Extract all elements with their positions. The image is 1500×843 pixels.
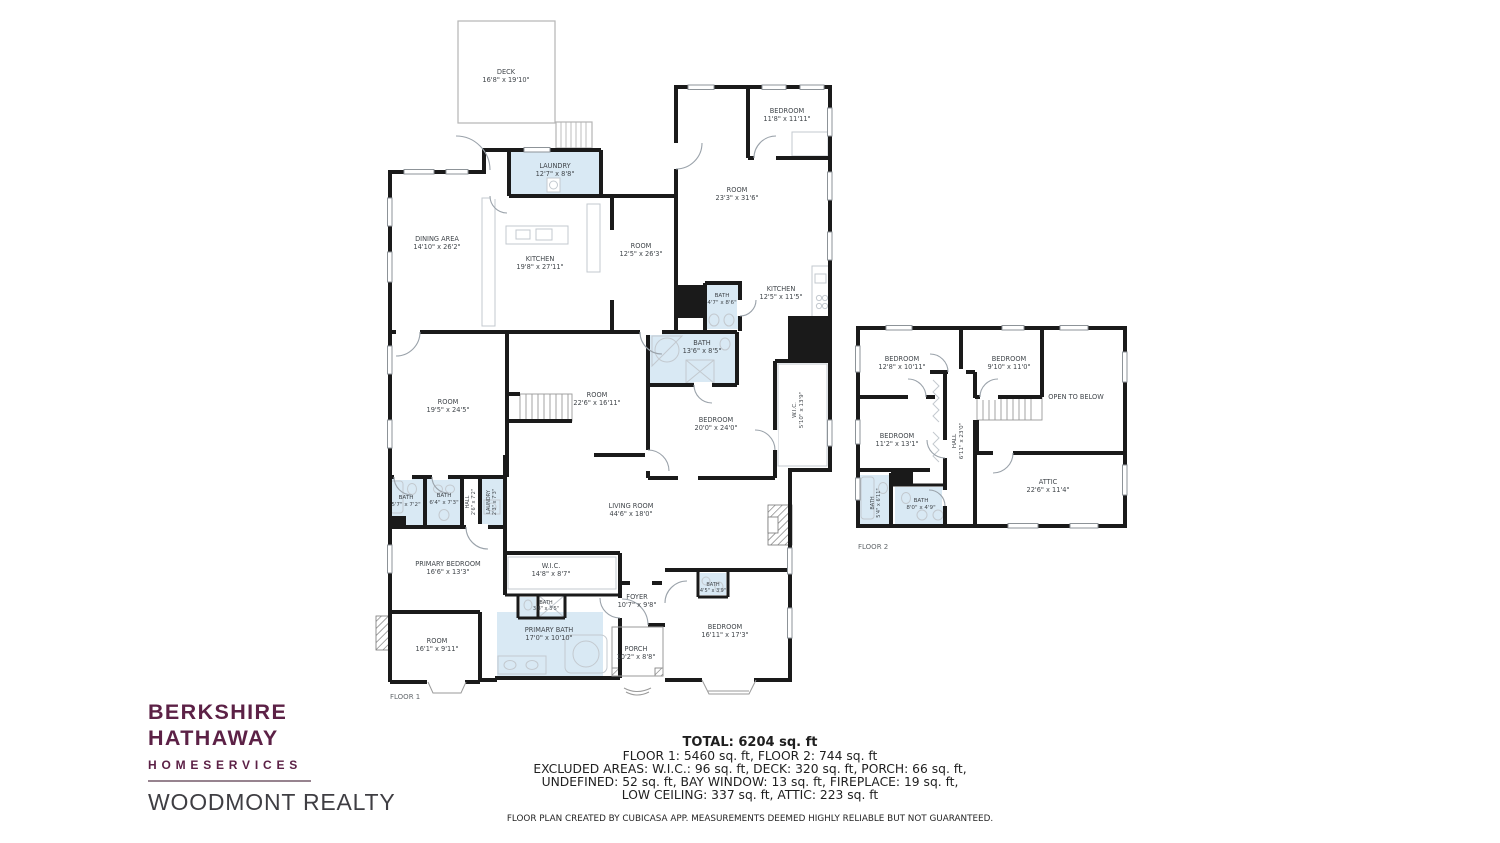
f1-primary-bath-dims: 17'0" x 10'10" xyxy=(525,634,572,642)
f1-bedroom-br-name: BEDROOM xyxy=(708,623,743,631)
f1-bath-a-dims: 5'7" x 7'2" xyxy=(391,502,421,508)
f1-bath-b-name: BATH xyxy=(437,493,452,499)
f2-bath1-dims: 5'4" x 6'11" xyxy=(876,488,882,517)
summary-floors: FLOOR 1: 5460 sq. ft, FLOOR 2: 744 sq. f… xyxy=(400,750,1100,763)
f1-living-room-dims: 44'6" x 18'0" xyxy=(610,510,653,518)
floor1-door-gaps xyxy=(394,143,778,685)
floor2-solid-blocks xyxy=(891,470,913,485)
f2-open-to-below: OPEN TO BELOW xyxy=(1048,393,1104,401)
summary-total: TOTAL: 6204 sq. ft xyxy=(400,736,1100,750)
f1-kitchen-name: KITCHEN xyxy=(526,255,555,263)
f1-porch-name: PORCH xyxy=(625,645,648,653)
f2-bedroom2-dims: 9'10" x 11'0" xyxy=(988,363,1031,371)
f1-deck-dims: 16'8" x 19'10" xyxy=(482,76,529,84)
f1-porch-dims: 10'2" x 8'8" xyxy=(617,653,656,661)
brand-logo: BERKSHIRE HATHAWAY HOMESERVICES WOODMONT… xyxy=(148,699,396,816)
f1-bath-b-dims: 6'4" x 7'3" xyxy=(429,500,459,506)
f1-bath47-name: BATH xyxy=(715,293,730,299)
summary-excluded-1: EXCLUDED AREAS: W.I.C.: 96 sq. ft, DECK:… xyxy=(400,763,1100,776)
floor1-windows xyxy=(388,85,833,638)
summary-disclaimer: FLOOR PLAN CREATED BY CUBICASA APP. MEAS… xyxy=(400,814,1100,824)
f1-primary-bedroom-dims: 16'6" x 13'3" xyxy=(427,568,470,576)
f1-wic2-name: W.I.C. xyxy=(542,562,561,570)
f1-primary-bedroom-name: PRIMARY BEDROOM xyxy=(415,560,481,568)
f2-attic-dims: 22'6" x 11'4" xyxy=(1027,486,1070,494)
f1-dining-name: DINING AREA xyxy=(415,235,459,243)
f1-room-l-dims: 19'5" x 24'5" xyxy=(427,406,470,414)
brand-hathaway: HATHAWAY xyxy=(148,725,396,751)
f1-laundry-name: LAUNDRY xyxy=(539,162,571,170)
f1-bath-a-name: BATH xyxy=(399,495,414,501)
floor2-caption: FLOOR 2 xyxy=(858,543,888,551)
f1-wic2-dims: 14'8" x 8'7" xyxy=(532,570,571,578)
f2-attic-name: ATTIC xyxy=(1039,478,1058,486)
f1-kitchen-dims: 19'8" x 27'11" xyxy=(516,263,563,271)
f1-bedroom-m-dims: 20'0" x 24'0" xyxy=(695,424,738,432)
summary-block: TOTAL: 6204 sq. ft FLOOR 1: 5460 sq. ft,… xyxy=(400,736,1100,824)
f1-room-bl-dims: 16'1" x 9'11" xyxy=(416,645,459,653)
f1-dining-dims: 14'10" x 26'2" xyxy=(413,243,460,251)
f2-bedroom3-dims: 11'2" x 13'1" xyxy=(876,440,919,448)
f2-bedroom2-name: BEDROOM xyxy=(992,355,1027,363)
f1-bath47-dims: 4'7" x 8'6" xyxy=(707,300,737,306)
f1-room-big-dims: 23'3" x 31'6" xyxy=(716,194,759,202)
f1-hall-dims: 2'6" x 7'2" xyxy=(471,489,477,515)
f2-bedroom1-dims: 12'8" x 10'11" xyxy=(878,363,925,371)
f1-room-c-dims: 12'5" x 26'3" xyxy=(620,250,663,258)
f1-wic-v-dims: 5'10" x 13'9" xyxy=(799,391,805,428)
f1-wic-v-name: W.I.C. xyxy=(792,402,798,418)
f1-primary-bath-name: PRIMARY BATH xyxy=(525,626,574,634)
f1-laundry-v-dims: 2'3" x 7'3" xyxy=(492,489,498,515)
f2-bath2-name: BATH xyxy=(914,498,929,504)
f1-bedroom-tr-dims: 11'8" x 11'11" xyxy=(763,115,810,123)
brand-woodmont-realty: WOODMONT REALTY xyxy=(148,789,396,816)
f1-living-room-name: LIVING ROOM xyxy=(609,502,654,510)
f1-room-l-name: ROOM xyxy=(438,398,459,406)
f1-deck-name: DECK xyxy=(497,68,516,76)
floor1-stairs xyxy=(520,394,572,421)
f2-hall-name: HALL xyxy=(952,433,958,448)
f1-room-c-name: ROOM xyxy=(631,242,652,250)
f1-room-m-name: ROOM xyxy=(587,391,608,399)
f2-bedroom1-name: BEDROOM xyxy=(885,355,920,363)
f1-bath13-dims: 13'6" x 8'5" xyxy=(683,347,722,355)
f1-bedroom-m-name: BEDROOM xyxy=(699,416,734,424)
brand-berkshire: BERKSHIRE xyxy=(148,699,396,725)
floor-plan-1: DECK 16'8" x 19'10" LAUNDRY 12'7" x 8'8"… xyxy=(376,21,832,701)
summary-excluded-2: UNDEFINED: 52 sq. ft, BAY WINDOW: 13 sq.… xyxy=(400,776,1100,789)
f1-kitchen2-dims: 12'5" x 11'5" xyxy=(760,293,803,301)
f1-kitchen2-name: KITCHEN xyxy=(767,285,796,293)
f2-hall-dims: 6'11" x 23'0" xyxy=(959,422,965,459)
brand-divider xyxy=(148,780,311,782)
f1-room-bl-name: ROOM xyxy=(427,637,448,645)
deck-outline xyxy=(458,21,592,148)
f1-laundry-dims: 12'7" x 8'8" xyxy=(536,170,575,178)
f1-bedroom-tr-name: BEDROOM xyxy=(770,107,805,115)
f2-bath2-dims: 8'0" x 4'9" xyxy=(906,505,936,511)
floor1-walls xyxy=(390,87,830,682)
f1-bath-tiny-dims: 3'8" x 3'5" xyxy=(533,606,559,612)
f1-bedroom-br-dims: 16'11" x 17'3" xyxy=(701,631,748,639)
floor2-stairs xyxy=(977,397,1042,420)
f1-bath13-name: BATH xyxy=(693,339,711,347)
f1-foyer-dims: 10'7" x 9'8" xyxy=(618,601,657,609)
summary-excluded-3: LOW CEILING: 337 sq. ft, ATTIC: 223 sq. … xyxy=(400,789,1100,802)
f2-bedroom3-name: BEDROOM xyxy=(880,432,915,440)
f1-bath45-dims: 4'5" x 3'9" xyxy=(700,588,726,594)
f1-room-big-name: ROOM xyxy=(727,186,748,194)
floor-plan-2: BEDROOM 12'8" x 10'11" BEDROOM 9'10" x 1… xyxy=(856,326,1128,552)
f1-room-m-dims: 22'6" x 16'11" xyxy=(573,399,620,407)
brand-homeservices: HOMESERVICES xyxy=(148,758,396,772)
f1-foyer-name: FOYER xyxy=(626,593,648,601)
